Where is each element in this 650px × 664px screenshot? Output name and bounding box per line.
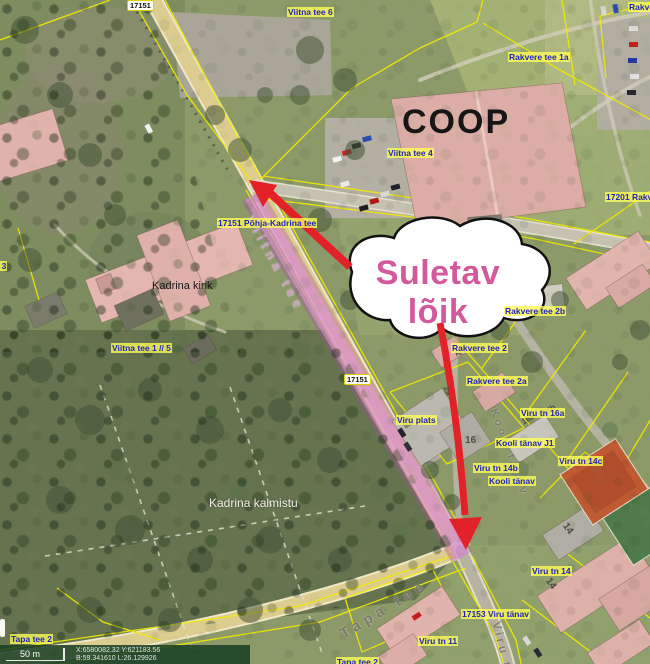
scale-bar: 50 m X:6580082.32 Y:621183.56 B:59.34161… — [0, 645, 250, 664]
coordinates-readout: X:6580082.32 Y:621183.56 B:59.341610 L:2… — [76, 647, 160, 663]
label-viitna-tee-1-5: Viitna tee 1 // 5 — [111, 343, 172, 353]
label-tapa-tee-2: Tapa tee 2 — [10, 634, 53, 644]
label-17201-rakvere: 17201 Rakv — [605, 192, 650, 202]
scale-bar-line — [6, 660, 63, 661]
closure-arrow-north-shaft — [270, 193, 350, 267]
map-edge-control[interactable] — [0, 619, 5, 637]
annotation-layer — [0, 0, 650, 664]
road-number-17151-mid: 17151 — [344, 374, 371, 385]
label-viitna-tee-4: Viitna tee 4 — [387, 148, 434, 158]
label-kadrina-kirik: Kadrina kirik — [152, 280, 213, 292]
label-viru-tn-11: Viru tn 11 — [418, 636, 458, 646]
label-rakvere-tee-2a: Rakvere tee 2a — [466, 376, 528, 386]
map-viewport[interactable]: 17151 17151 Viitna tee 6 Rakve Rakvere t… — [0, 0, 650, 664]
label-kadrina-kalmistu: Kadrina kalmistu — [209, 496, 298, 510]
coordinates-xy: X:6580082.32 Y:621183.56 — [76, 647, 160, 655]
label-viitna-tee-6: Viitna tee 6 — [287, 7, 334, 17]
label-rakvere-tee-1a: Rakvere tee 1a — [508, 52, 570, 62]
label-17151-pohja-kadrina-tee: 17151 Põhja-Kadrina tee — [217, 218, 317, 228]
coordinates-bl: B:59.341610 L:26.129926 — [76, 655, 160, 663]
scale-bar-tick — [63, 648, 65, 661]
label-rakvere-tee-2: Rakvere tee 2 — [451, 343, 508, 353]
label-rakvere-clipped: Rakve — [628, 2, 650, 12]
label-tee-3-clipped: tee 3 — [0, 261, 7, 271]
scale-bar-distance: 50 m — [20, 649, 40, 659]
label-coop-store: COOP — [402, 103, 510, 142]
label-kooli-tanav-j1: Kooli tänav J1 — [495, 438, 555, 448]
label-kooli-tanav: Kooli tänav — [488, 476, 536, 486]
label-17153-viru-tanav: 17153 Viru tänav — [461, 609, 530, 619]
road-number-17151-top: 17151 — [127, 0, 154, 11]
label-viru-tn-14b: Viru tn 14b — [473, 463, 519, 473]
closure-callout-text: Suletav lõik — [342, 254, 534, 332]
parcel-number-16: 16 — [465, 435, 476, 446]
label-tapa-tee-2-clipped: Tapa tee 2 — [336, 657, 379, 664]
label-viru-tn-14: Viru tn 14 — [531, 566, 572, 576]
closure-arrow-south-head — [449, 517, 482, 550]
label-viru-tn-14c: Viru tn 14c — [558, 456, 603, 466]
label-viru-tn-16a: Viru tn 16a — [520, 408, 565, 418]
label-viru-plats: Viru plats — [396, 415, 437, 425]
